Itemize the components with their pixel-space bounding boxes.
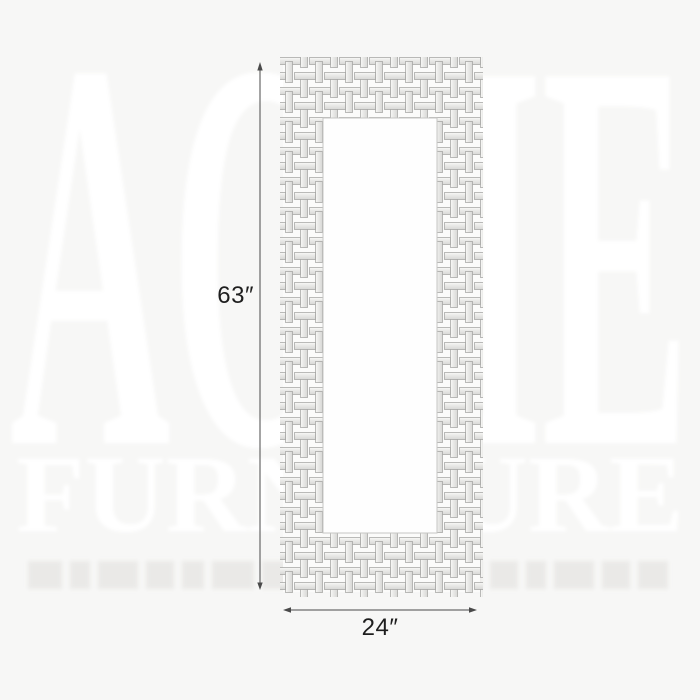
mirror-surface	[323, 118, 437, 533]
arrow-right-icon	[469, 607, 477, 612]
width-dimension-line	[283, 607, 477, 612]
width-dimension-label: 24″	[283, 615, 477, 641]
arrow-left-icon	[283, 607, 291, 612]
arrow-up-icon	[257, 62, 262, 71]
height-dimension-line	[257, 62, 262, 590]
height-dimension-label: 63″	[217, 283, 254, 309]
arrow-down-icon	[257, 583, 262, 591]
mirror-frame-illustration	[278, 57, 484, 597]
